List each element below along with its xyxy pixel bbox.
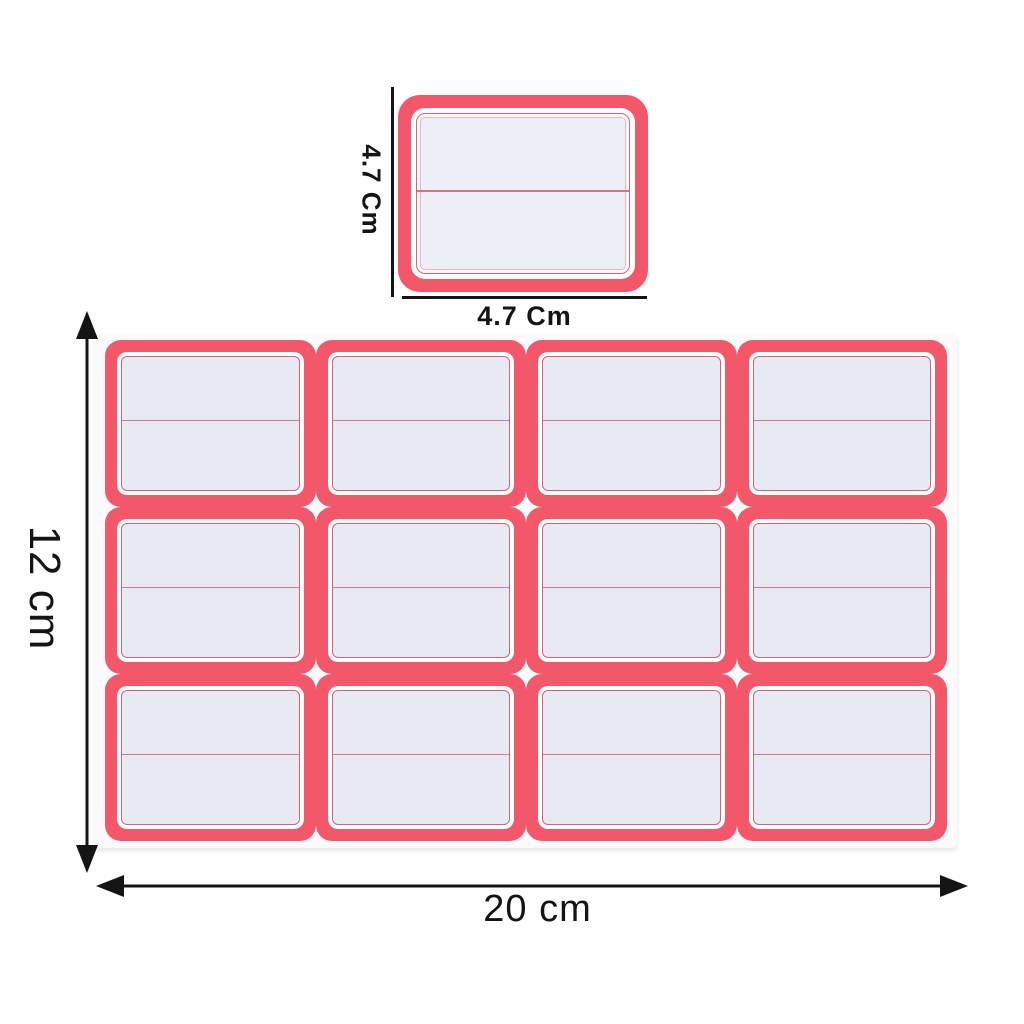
- small-label-writing-area: [416, 113, 630, 274]
- sheet-label-writing-area: [542, 356, 721, 491]
- sheet-label: [105, 507, 316, 674]
- sheet-label: [737, 507, 948, 674]
- sheet-label-writing-area: [121, 690, 300, 825]
- sheet-height-label: 12 cm: [19, 526, 69, 651]
- sheet-label-writing-area: [542, 523, 721, 658]
- sheet-label: [526, 340, 737, 507]
- small-label-width-line: [402, 296, 647, 299]
- sheet-label-ruled-line: [333, 420, 510, 422]
- small-label-height-line: [391, 87, 394, 297]
- sheet-label-writing-area: [753, 523, 932, 658]
- sheet-label-ruled-line: [543, 420, 720, 422]
- sheet-label-ruled-line: [754, 420, 931, 422]
- sheet-label: [526, 507, 737, 674]
- sheet-label-writing-area: [332, 523, 511, 658]
- product-dimension-diagram: 4.7 Cm 4.7 Cm: [0, 0, 1024, 1024]
- label-sheet: [95, 333, 957, 848]
- sheet-width-label: 20 cm: [400, 888, 675, 931]
- sheet-grid: [105, 340, 947, 841]
- sheet-label-ruled-line: [122, 587, 299, 589]
- sheet-label: [316, 340, 527, 507]
- sheet-label-writing-area: [332, 356, 511, 491]
- small-label-sticker: [398, 95, 648, 292]
- sheet-label: [737, 674, 948, 841]
- sheet-label-writing-area: [542, 690, 721, 825]
- sheet-label-ruled-line: [543, 587, 720, 589]
- sheet-label-ruled-line: [333, 754, 510, 756]
- sheet-label: [316, 507, 527, 674]
- sheet-label: [316, 674, 527, 841]
- sheet-label-ruled-line: [122, 420, 299, 422]
- sheet-label: [526, 674, 737, 841]
- sheet-label-ruled-line: [754, 754, 931, 756]
- sheet-label-ruled-line: [754, 587, 931, 589]
- sheet-label-writing-area: [121, 523, 300, 658]
- small-label-ruled-line: [417, 190, 629, 192]
- sheet-label: [737, 340, 948, 507]
- sheet-label-writing-area: [753, 356, 932, 491]
- sheet-label-ruled-line: [122, 754, 299, 756]
- sheet-label: [105, 340, 316, 507]
- sheet-label-ruled-line: [333, 587, 510, 589]
- small-label-width-label: 4.7 Cm: [402, 301, 647, 332]
- sheet-label-writing-area: [753, 690, 932, 825]
- sheet-label-writing-area: [121, 356, 300, 491]
- sheet-label-ruled-line: [543, 754, 720, 756]
- sheet-label-writing-area: [332, 690, 511, 825]
- sheet-label: [105, 674, 316, 841]
- small-label-height-label: 4.7 Cm: [356, 144, 387, 235]
- sheet-height-arrow-icon: [74, 311, 100, 873]
